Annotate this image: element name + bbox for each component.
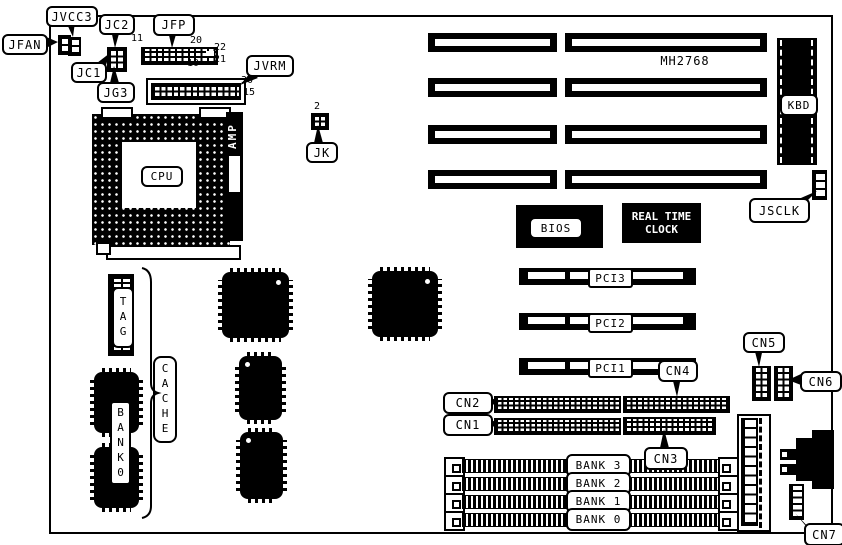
cache-bank0-label: BANK0 bbox=[110, 401, 131, 485]
cn6-label: CN6 bbox=[800, 371, 842, 392]
isa-slot bbox=[565, 125, 767, 144]
rtc-label-line2: CLOCK bbox=[645, 223, 678, 236]
cache-chip bbox=[240, 432, 283, 499]
simm-slot bbox=[462, 459, 568, 473]
din-connector-tab bbox=[780, 449, 798, 460]
cache-label: CACHE bbox=[153, 356, 177, 443]
motherboard-diagram: MH2768 KBD JSCLK CPU AMP JFP 11 20 22 21… bbox=[0, 0, 842, 545]
cn2-connector bbox=[494, 396, 621, 413]
din-connector-body bbox=[796, 438, 816, 481]
cache-chip bbox=[372, 271, 438, 337]
jfp-connector bbox=[141, 47, 218, 65]
jg3-label: JG3 bbox=[97, 82, 135, 103]
simm-slot bbox=[462, 495, 568, 509]
bank0-label: BANK 0 bbox=[566, 508, 631, 531]
cn5-connector bbox=[752, 366, 771, 401]
jsclk-connector bbox=[812, 170, 827, 200]
simm-slot bbox=[628, 513, 719, 527]
jvrm-label: JVRM bbox=[246, 55, 294, 77]
pci1-label: PCI1 bbox=[588, 358, 633, 378]
simm-end bbox=[718, 511, 739, 531]
jvrm-pin-30: 30 bbox=[241, 75, 253, 86]
jfp-pin-22: 22 bbox=[214, 42, 226, 53]
simm-end bbox=[718, 457, 739, 477]
jfp-pin-20: 20 bbox=[190, 35, 202, 46]
isa-slot bbox=[428, 170, 557, 189]
jfp-pin-11: 11 bbox=[131, 33, 143, 44]
isa-slot bbox=[428, 125, 557, 144]
jvcc3-label: JVCC3 bbox=[46, 6, 98, 27]
simm-slot bbox=[462, 513, 568, 527]
part-number: MH2768 bbox=[645, 54, 725, 68]
jc2-label: JC2 bbox=[99, 14, 135, 35]
jfp-pin-21: 21 bbox=[214, 54, 226, 65]
cn1-label: CN1 bbox=[443, 414, 493, 436]
amp-label: AMP bbox=[226, 114, 243, 158]
cn3-label: CN3 bbox=[644, 447, 688, 470]
isa-slot bbox=[428, 78, 557, 97]
jvcc3-connector bbox=[68, 37, 81, 56]
simm-end bbox=[718, 493, 739, 513]
simm-slot bbox=[628, 495, 719, 509]
bios-label: BIOS bbox=[529, 217, 583, 239]
jsclk-label: JSCLK bbox=[749, 198, 810, 223]
heatsink-clip bbox=[101, 107, 133, 119]
jfp-pin-10: 10 bbox=[187, 58, 199, 69]
cn7-label: CN7 bbox=[804, 523, 842, 545]
simm-slot bbox=[628, 477, 719, 491]
jk-label: JK bbox=[306, 142, 338, 163]
jc1-label: JC1 bbox=[71, 62, 107, 83]
jk-pin-2: 2 bbox=[314, 101, 320, 112]
jfan-label: JFAN bbox=[2, 34, 48, 55]
pci2-label: PCI2 bbox=[588, 313, 633, 333]
rtc-chip: REAL TIME CLOCK bbox=[622, 203, 701, 243]
jc-jumper-block bbox=[107, 47, 127, 72]
tag-label: TAG bbox=[112, 287, 134, 348]
cn4-label: CN4 bbox=[658, 360, 698, 382]
cn3-connector bbox=[623, 417, 716, 435]
jfp-label: JFP bbox=[153, 14, 195, 36]
jvrm-connector bbox=[146, 78, 246, 105]
cn4-connector bbox=[623, 396, 730, 413]
jk-connector bbox=[311, 113, 329, 130]
cn7-connector bbox=[789, 484, 804, 520]
cpu-label: CPU bbox=[141, 166, 183, 187]
isa-slot bbox=[428, 33, 557, 52]
jvrm-pin-15: 15 bbox=[243, 87, 255, 98]
rtc-label-line1: REAL TIME bbox=[632, 210, 692, 223]
isa-slot bbox=[565, 78, 767, 97]
simm-end bbox=[718, 475, 739, 495]
simm-slot bbox=[462, 477, 568, 491]
cn1-connector bbox=[494, 418, 621, 435]
amp-regulator: AMP bbox=[226, 112, 243, 241]
isa-slot bbox=[565, 170, 767, 189]
din-connector-tab bbox=[780, 464, 798, 475]
cn6-connector bbox=[774, 366, 793, 401]
socket-lever bbox=[106, 245, 241, 260]
cn2-label: CN2 bbox=[443, 392, 493, 414]
kbd-label: KBD bbox=[780, 94, 818, 116]
cache-chip bbox=[239, 356, 282, 420]
power-connector bbox=[737, 414, 771, 532]
socket-lever-tab bbox=[96, 242, 111, 255]
pci3-label: PCI3 bbox=[588, 268, 633, 288]
cn5-label: CN5 bbox=[743, 332, 785, 353]
cache-chip bbox=[222, 272, 289, 338]
isa-slot bbox=[565, 33, 767, 52]
